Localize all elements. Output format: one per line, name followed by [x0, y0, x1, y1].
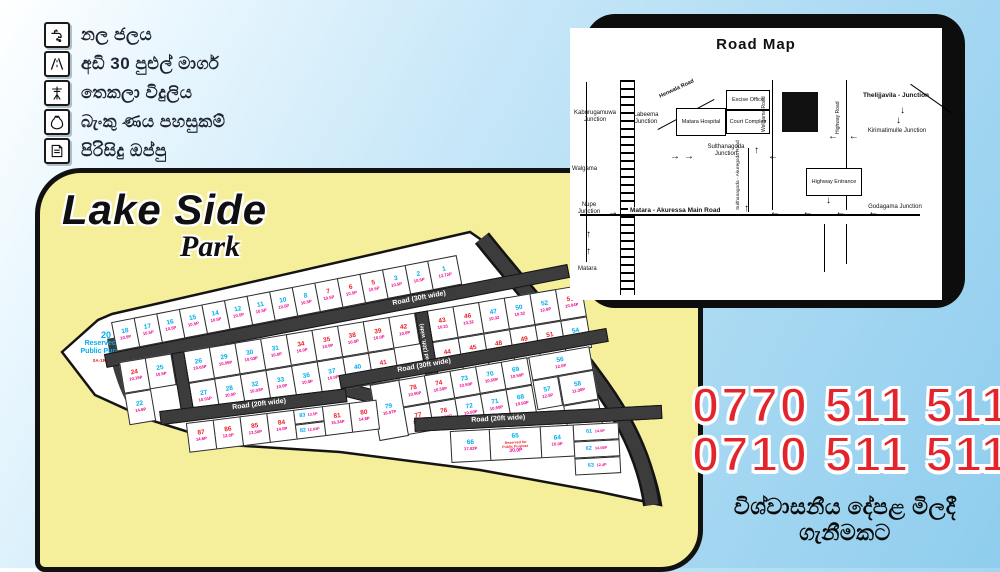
walgama-label: Walgama: [572, 166, 597, 173]
feature-list: නල ජලය අඩි 30 පුළුල් මාර්ග තෙකලා විදුලිය…: [44, 24, 225, 169]
plot-64: 6410.0P: [541, 425, 577, 478]
feature-item-water: නල ජලය: [44, 24, 225, 46]
road-label: Road (20ft wide): [471, 414, 525, 424]
tagline-text: විශ්වාසනීය දේපළ මිලදී ගැනීමකට: [692, 494, 998, 546]
road-map-title: Road Map: [570, 36, 942, 53]
road-map-inset: Road Map Henwala Road Kaburugamuwa Junct…: [570, 28, 942, 300]
arrow-right-icon: →: [684, 152, 694, 162]
arrow-left-icon: ← ←: [828, 132, 863, 142]
arrow-up-icon: ↑: [754, 146, 759, 156]
logo-text-sub: Park: [180, 230, 312, 264]
contact-block: 0770 511 511 0710 511 511 විශ්වාසනීය දේප…: [692, 382, 998, 546]
plot-65-reserved: 65 Reserved for Public Purpose 30.0P: [489, 426, 543, 461]
arrow-right-icon: →: [608, 208, 618, 218]
sulthanagoda-junction-label: Sulthanagoda Junction: [702, 144, 750, 158]
tap-icon: [44, 22, 70, 48]
labeema-junction-label: Labeema Junction: [628, 112, 664, 126]
feature-label: තෙකලා විදුලිය: [81, 83, 192, 103]
phone-number-1: 0770 511 511: [692, 382, 998, 431]
feature-label: නල ජලය: [81, 25, 152, 45]
arrow-up-icon: ↑: [586, 230, 591, 240]
feature-item-bank: බැංකු ණය පහසුකම්: [44, 111, 225, 133]
lake-side-park-logo: Lake Side Park: [62, 186, 312, 264]
plot-80: 8014.6P: [349, 400, 380, 433]
plot-63: 6312.4P: [574, 456, 621, 475]
bank-loan-icon: [44, 109, 70, 135]
arrow-left-icon: ←: [768, 152, 778, 162]
phone-number-2: 0710 511 511: [692, 431, 998, 480]
road-icon: [44, 51, 70, 77]
arrow-up-icon: ↑: [744, 204, 749, 214]
electricity-icon: [44, 80, 70, 106]
deed-icon: [44, 138, 70, 164]
plot-66: 6617.02P: [450, 429, 492, 463]
feature-label: පිරිසිදු ඔප්පු: [81, 141, 167, 161]
feature-label: අඩි 30 පුළුල් මාර්ග: [81, 54, 219, 74]
highway-entrance-box: Highway Entrance: [806, 168, 862, 196]
feature-item-roads: අඩි 30 පුළුල් මාර්ග: [44, 53, 225, 75]
feature-item-deed: පිරිසිදු ඔප්පු: [44, 140, 225, 162]
map-line: [824, 224, 825, 272]
godagama-junction-label: Godagama Junction: [868, 204, 922, 211]
flyer-background: { "features": { "items": [ {"icon": "tap…: [0, 0, 1000, 568]
plot-66: 6617.02P: [451, 429, 493, 482]
arrow-right-icon: →: [670, 152, 680, 162]
arrow-down-icon: ↓: [896, 116, 901, 126]
map-line: [846, 224, 847, 264]
plot-extent: 30.0P: [509, 448, 522, 454]
plot-64: 6410.0P: [540, 425, 576, 459]
nupe-junction-label: Nupe Junction: [572, 202, 606, 216]
plot-22: 2214.6P: [124, 389, 156, 425]
matara-label: Matara: [578, 266, 597, 273]
logo-text-main: Lake Side: [62, 186, 312, 234]
feature-item-electricity: තෙකලා විදුලිය: [44, 82, 225, 104]
feature-label: බැංකු ණය පහසුකම්: [81, 112, 225, 132]
plot-stack-61-63: 6114.0P6214.05P6312.4P: [574, 422, 622, 475]
arrow-down-icon: ↓: [826, 196, 831, 206]
reserved-line2: Public Purpose: [502, 444, 528, 449]
arrow-up-icon: ↑: [586, 247, 591, 257]
kaburugamuwa-junction-label: Kaburugamuwa Junction: [570, 110, 620, 124]
land-location-marker: [782, 92, 818, 132]
plot-band-bottom-right: Road (20ft wide) 6617.02P 65 Reserved fo…: [450, 405, 665, 482]
weligama-road-label: Weligama Road: [762, 84, 768, 144]
henwala-road-label: Henwala Road: [658, 78, 695, 100]
main-road-label: Matara - Akuressa Main Road: [628, 207, 722, 214]
matara-hospital-box: Matara Hospital: [676, 108, 726, 136]
sulthanagoda-akuregoda-road-label: Sulthanagoda - Akuregoda Road: [736, 140, 742, 210]
map-line-weligama: [772, 80, 773, 210]
kirimatimulle-junction-label: Kirimatimulle Junction: [862, 128, 932, 135]
